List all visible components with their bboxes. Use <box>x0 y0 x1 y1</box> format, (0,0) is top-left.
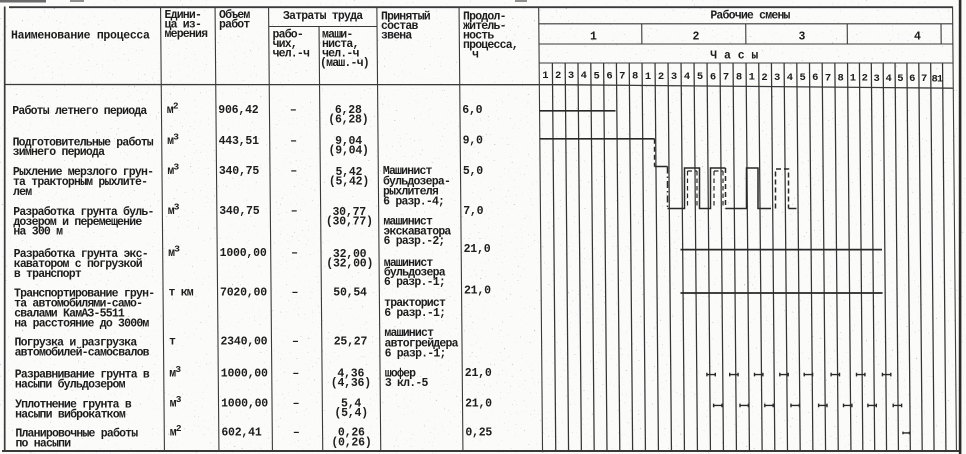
svg-text:1000,00: 1000,00 <box>221 368 268 381</box>
svg-text:6,0: 6,0 <box>462 104 482 117</box>
svg-text:3: 3 <box>874 73 880 85</box>
svg-text:Наименование процесса: Наименование процесса <box>11 30 150 43</box>
svg-text:5: 5 <box>897 73 903 85</box>
svg-text:автомобилей-самосвалов: автомобилей-самосвалов <box>15 346 150 359</box>
svg-text:насыпи бульдозером: насыпи бульдозером <box>15 379 126 392</box>
svg-text:3: 3 <box>774 72 780 84</box>
svg-text:8: 8 <box>632 71 638 83</box>
svg-text:6: 6 <box>606 70 612 82</box>
svg-text:3: 3 <box>568 70 574 82</box>
svg-text:5,0: 5,0 <box>463 165 483 178</box>
svg-text:(6,28): (6,28) <box>328 114 368 127</box>
svg-text:1: 1 <box>645 71 651 83</box>
svg-text:лем: лем <box>13 186 32 199</box>
svg-text:2: 2 <box>761 72 767 84</box>
svg-text:2: 2 <box>862 73 868 85</box>
svg-text:5: 5 <box>799 72 805 84</box>
svg-text:21,0: 21,0 <box>464 243 491 256</box>
svg-text:–: – <box>291 205 298 218</box>
svg-text:–: – <box>293 427 300 440</box>
svg-text:6 разр.-4;: 6 разр.-4; <box>383 196 444 209</box>
svg-text:6 разр.-1;: 6 разр.-1; <box>384 276 445 289</box>
svg-text:2: 2 <box>692 31 699 44</box>
svg-text:7020,00: 7020,00 <box>220 287 267 300</box>
svg-text:–: – <box>292 335 299 348</box>
svg-text:1: 1 <box>542 70 548 82</box>
svg-text:(5,4): (5,4) <box>334 407 368 420</box>
svg-text:6 разр.-2;: 6 разр.-2; <box>384 235 445 248</box>
svg-text:мерения: мерения <box>165 28 209 41</box>
svg-text:3 кл.-5: 3 кл.-5 <box>385 377 429 390</box>
svg-text:6: 6 <box>909 73 915 85</box>
svg-text:та тракторным рыхлите-: та тракторным рыхлите- <box>13 176 147 189</box>
svg-text:3: 3 <box>798 31 805 44</box>
svg-text:2: 2 <box>555 70 561 82</box>
svg-text:(5,42): (5,42) <box>329 176 369 189</box>
svg-text:1: 1 <box>850 73 856 85</box>
svg-text:Затраты труда: Затраты труда <box>283 10 363 23</box>
svg-text:21,0: 21,0 <box>465 398 492 411</box>
svg-text:340,75: 340,75 <box>219 165 260 178</box>
svg-text:5: 5 <box>697 71 703 83</box>
svg-text:3: 3 <box>671 71 677 83</box>
svg-text:4: 4 <box>787 72 793 84</box>
svg-text:ч: ч <box>472 49 479 62</box>
svg-text:–: – <box>290 135 297 148</box>
svg-text:1: 1 <box>937 74 943 85</box>
svg-text:Работы летнего периода: Работы летнего периода <box>12 105 147 118</box>
svg-text:в транспорт: в транспорт <box>14 268 82 281</box>
svg-text:6 разр.-1;: 6 разр.-1; <box>384 307 445 320</box>
svg-text:работ: работ <box>219 19 250 32</box>
svg-text:21,0: 21,0 <box>464 285 491 298</box>
svg-text:5: 5 <box>594 70 600 82</box>
svg-text:2340,00: 2340,00 <box>220 335 267 348</box>
svg-text:–: – <box>292 368 299 381</box>
svg-text:–: – <box>291 247 298 260</box>
svg-text:(маш.-ч): (маш.-ч) <box>320 57 369 70</box>
svg-text:4: 4 <box>684 71 690 83</box>
svg-text:чел.-ч: чел.-ч <box>273 48 311 61</box>
svg-text:443,51: 443,51 <box>219 135 260 148</box>
svg-text:–: – <box>290 165 297 178</box>
svg-text:2: 2 <box>658 71 664 83</box>
svg-text:–: – <box>292 287 299 300</box>
svg-text:1000,00: 1000,00 <box>221 398 268 411</box>
svg-text:4: 4 <box>885 73 891 85</box>
svg-text:(4,36): (4,36) <box>331 377 371 390</box>
svg-text:4: 4 <box>914 31 921 44</box>
svg-text:на расстояние до 3000м: на расстояние до 3000м <box>14 317 149 330</box>
svg-text:(0,26): (0,26) <box>331 437 371 450</box>
svg-text:8: 8 <box>838 73 844 85</box>
svg-text:7,0: 7,0 <box>463 205 483 218</box>
svg-text:6: 6 <box>812 72 818 84</box>
svg-text:6 разр.-1;: 6 разр.-1; <box>385 348 446 361</box>
svg-text:(32,00): (32,00) <box>326 258 373 271</box>
svg-text:50,54: 50,54 <box>333 287 367 300</box>
svg-text:1000,00: 1000,00 <box>220 247 267 260</box>
svg-text:Ч а с ы: Ч а с ы <box>710 50 758 63</box>
svg-text:7: 7 <box>921 73 927 85</box>
svg-text:(30,77): (30,77) <box>326 216 373 229</box>
svg-text:т: т <box>169 335 176 348</box>
svg-text:звена: звена <box>381 30 412 43</box>
svg-text:21,0: 21,0 <box>465 367 492 380</box>
svg-text:Рабочие смены: Рабочие смены <box>710 10 790 23</box>
svg-text:–: – <box>290 104 297 117</box>
svg-text:зимнего периода: зимнего периода <box>13 146 105 159</box>
svg-text:602,41: 602,41 <box>221 427 262 440</box>
svg-text:9,0: 9,0 <box>463 135 483 148</box>
svg-text:–: – <box>293 398 300 411</box>
svg-text:0,25: 0,25 <box>465 427 492 440</box>
svg-text:4: 4 <box>581 70 587 82</box>
svg-text:1: 1 <box>749 72 755 84</box>
svg-text:7: 7 <box>619 71 625 83</box>
svg-text:т км: т км <box>169 287 194 300</box>
svg-text:насыпи виброкатком: насыпи виброкатком <box>15 409 126 422</box>
svg-text:на 300 м: на 300 м <box>13 226 63 239</box>
svg-text:по насыпи: по насыпи <box>15 438 71 451</box>
svg-text:7: 7 <box>723 72 729 84</box>
svg-text:6: 6 <box>710 71 716 83</box>
svg-text:8: 8 <box>736 72 742 84</box>
svg-text:7: 7 <box>825 72 831 84</box>
svg-text:340,75: 340,75 <box>219 205 260 218</box>
svg-text:(9,04): (9,04) <box>329 145 369 158</box>
svg-text:25,27: 25,27 <box>334 335 368 348</box>
svg-text:1: 1 <box>590 31 597 44</box>
svg-text:906,42: 906,42 <box>218 104 259 117</box>
